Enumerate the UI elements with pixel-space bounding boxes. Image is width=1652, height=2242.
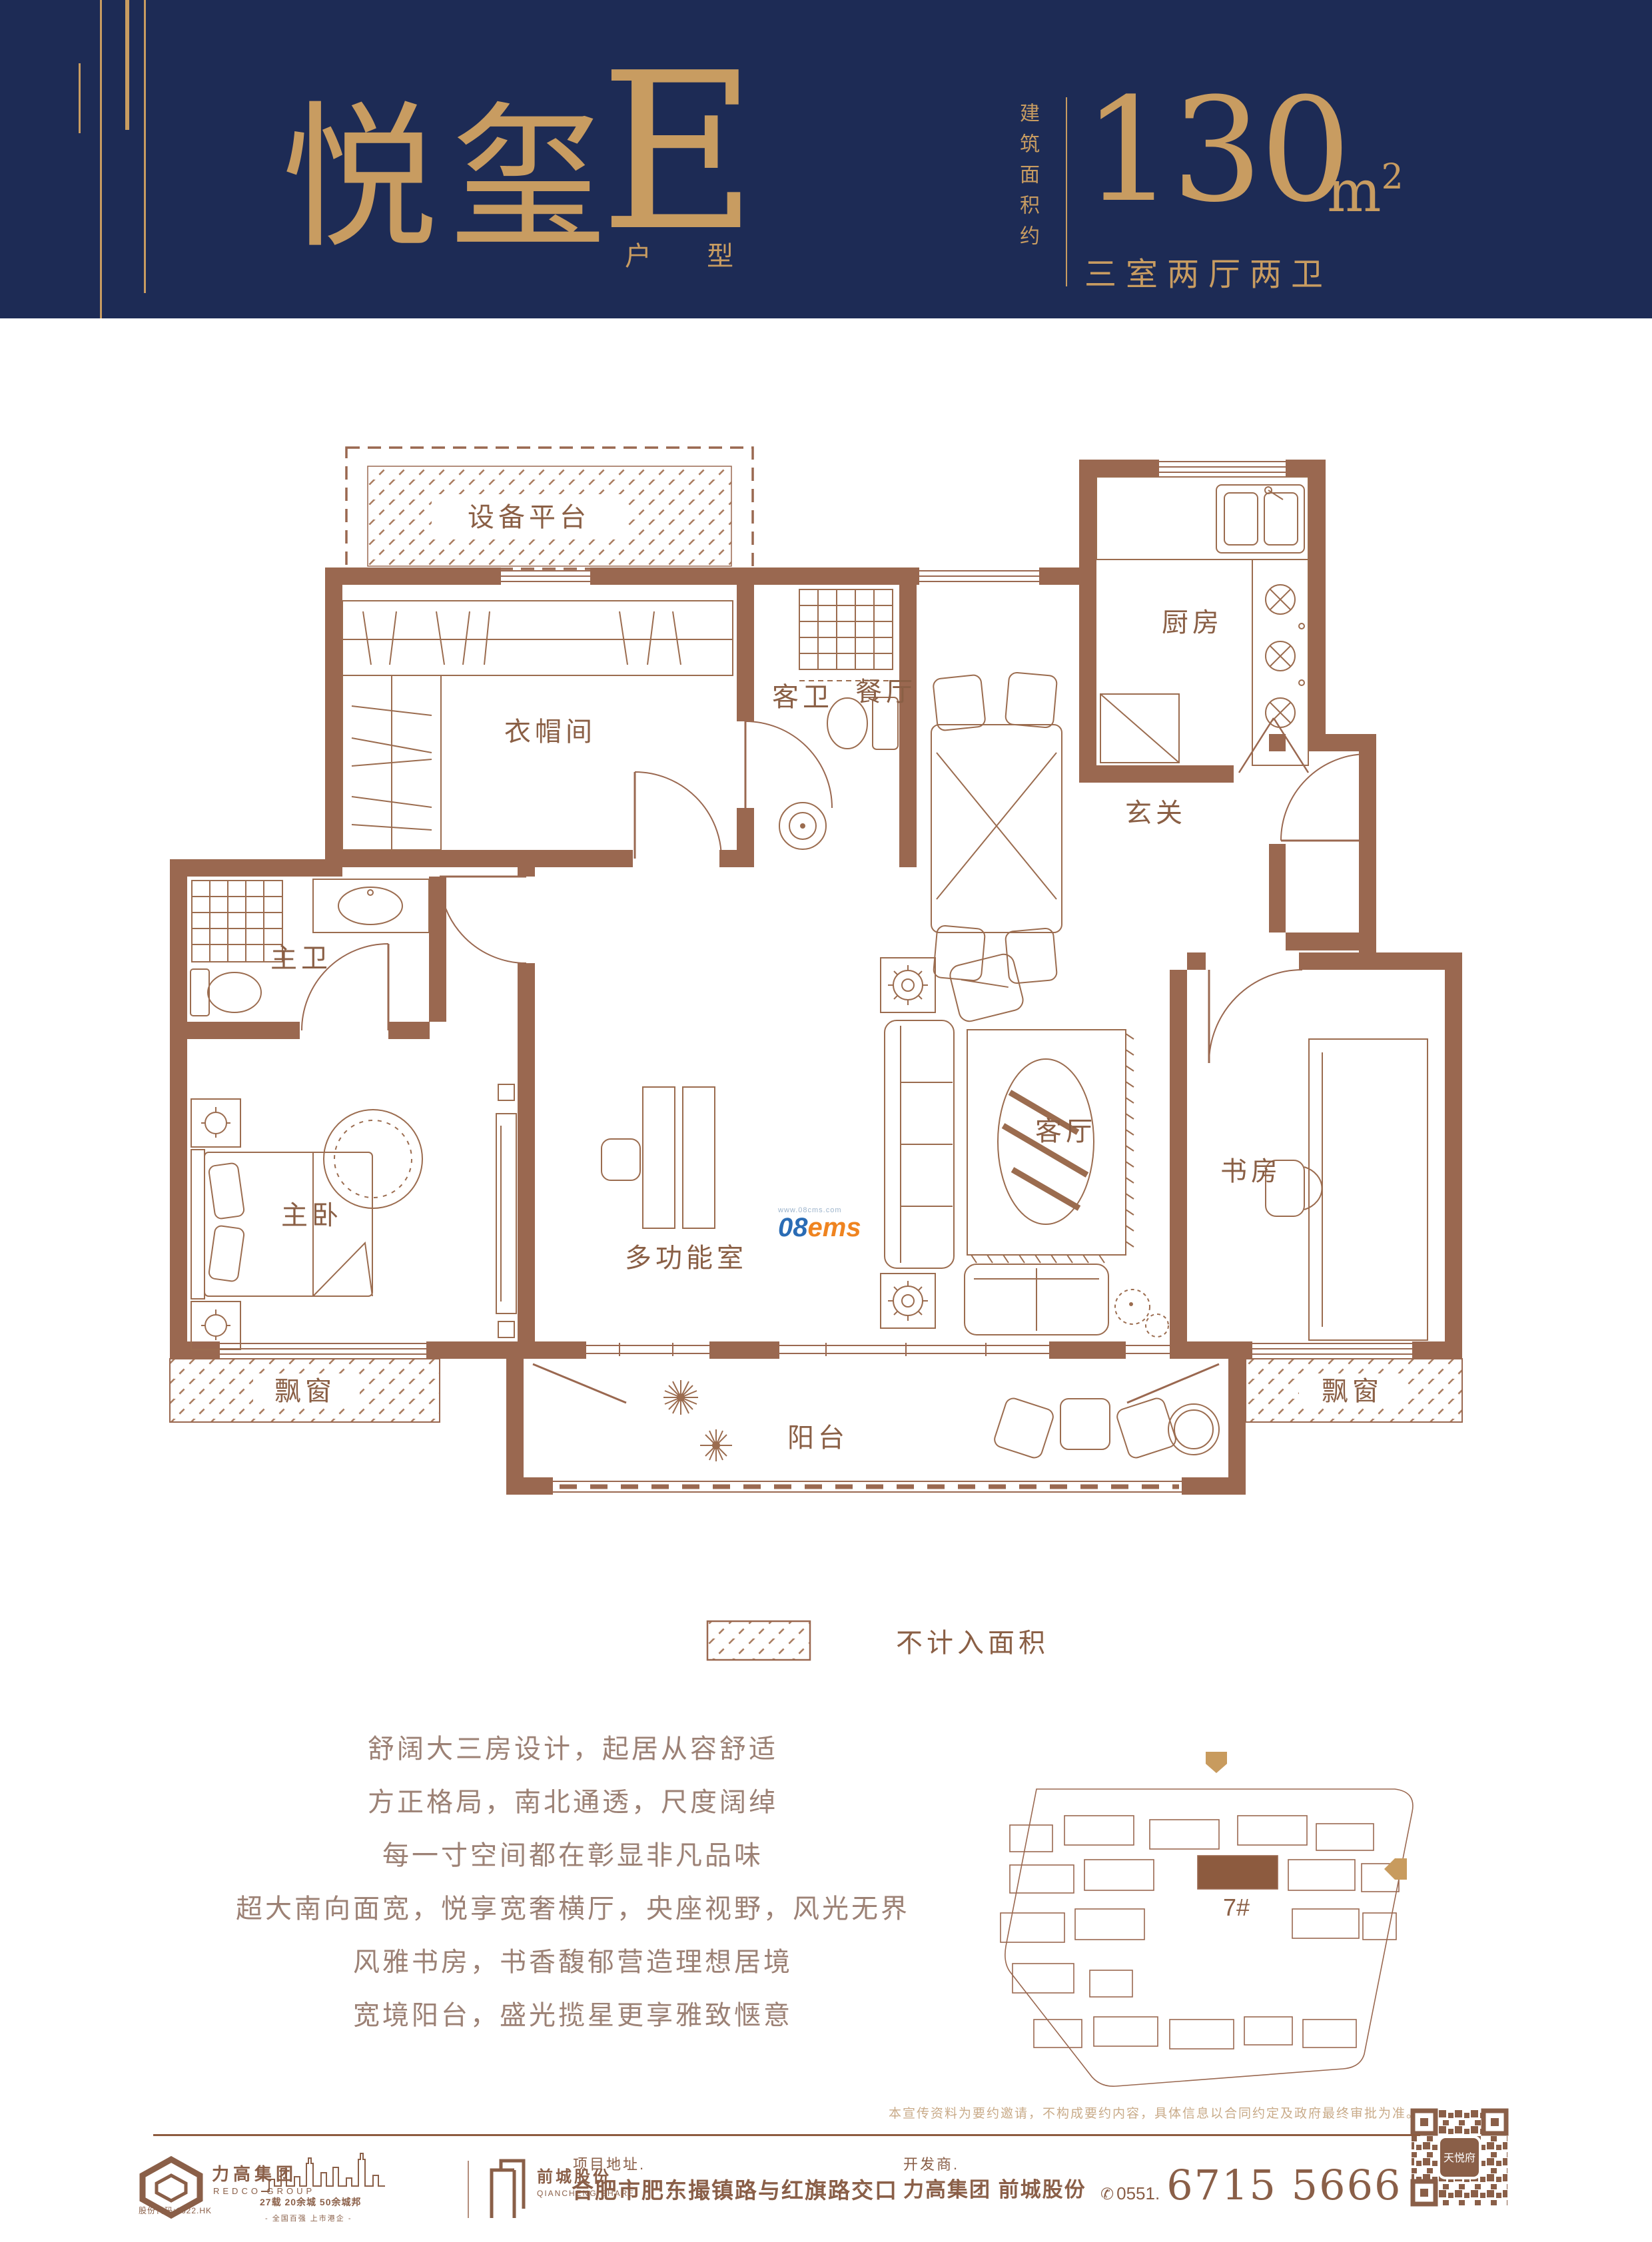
- room-label-kitchen: 厨房: [1162, 608, 1223, 637]
- site-arrow-east: [1384, 1858, 1407, 1880]
- developer-names: 力高集团 前城股份: [903, 2173, 1086, 2203]
- developer-label: 开发商.: [903, 2153, 959, 2174]
- address-label: 项目地址.: [573, 2153, 645, 2174]
- footer-rule: [153, 2134, 1420, 2136]
- marketing-line: 宽境阳台，盛光揽星更享雅致惬意: [206, 1989, 939, 2042]
- room-label-multi: 多功能室: [625, 1244, 747, 1273]
- site-arrow-north: [1206, 1752, 1227, 1773]
- legend: 不计入面积: [707, 1621, 1049, 1660]
- marketing-line: 每一寸空间都在彰显非凡品味: [206, 1829, 939, 1882]
- marketing-copy: 舒阔大三房设计，起居从容舒适 方正格局，南北通透，尺度阔绰 每一寸空间都在彰显非…: [206, 1722, 939, 2042]
- bay-windows: [170, 1359, 1462, 1422]
- room-label-cloakroom: 衣帽间: [504, 717, 596, 747]
- redco-name-en: REDCO GROUP: [213, 2186, 315, 2196]
- room-label-balcony: 阳台: [787, 1423, 849, 1453]
- phone-icon: ✆: [1100, 2185, 1114, 2204]
- stock-code: 股份代码:1622.HK: [139, 2205, 212, 2216]
- phone-row: ✆ 0551. 6715 5666: [1100, 2161, 1402, 2209]
- furniture: [191, 477, 1428, 1461]
- qr-center-label: 天悦府: [1444, 2152, 1475, 2164]
- milestones-text: 27载 20余城 50余城邦: [260, 2195, 362, 2209]
- room-label-dining: 餐厅: [855, 677, 917, 707]
- windows: [172, 462, 1412, 1492]
- qr-code: 天悦府: [1409, 2107, 1510, 2208]
- room-label-master-bed: 主卧: [281, 1201, 342, 1230]
- disclaimer-text: 本宣传资料为要约邀请，不构成要约内容，具体信息以合同约定及政府最终审批为准。: [799, 2103, 1420, 2121]
- milestones-subtext: - 全国百强 上市港企 -: [265, 2213, 352, 2223]
- room-label-bay-left: 飘窗: [274, 1377, 336, 1406]
- room-label-bay-right: 飘窗: [1322, 1377, 1383, 1406]
- room-label-living: 客厅: [1035, 1117, 1096, 1146]
- watermark: www.08cms.com08ems: [778, 1207, 861, 1241]
- legend-label: 不计入面积: [896, 1629, 1049, 1658]
- marketing-line: 风雅书房，书香馥郁营造理想居境: [206, 1936, 939, 1989]
- marketing-line: 超大南向面宽，悦享宽奢横厅，央座视野，风光无界: [206, 1882, 939, 1936]
- room-label-master-bath: 主卫: [270, 944, 332, 973]
- room-label-guest-bath: 客卫: [772, 683, 833, 712]
- room-label-platform: 设备平台: [468, 503, 590, 532]
- qiancheng-logo-icon: [492, 2161, 524, 2218]
- phone-number: 6715 5666: [1166, 2161, 1402, 2209]
- redco-name: 力高集团: [212, 2161, 297, 2185]
- site-building-label: 7#: [1223, 1894, 1250, 1921]
- site-building-7: [1198, 1856, 1278, 1889]
- room-label-study: 书房: [1220, 1157, 1282, 1186]
- site-plan: 7#: [1001, 1752, 1413, 2086]
- poster-page: 悦玺 E 户 型 建筑面积约 130 m2 三室两厅两卫: [0, 0, 1652, 2242]
- room-label-foyer: 玄关: [1125, 799, 1186, 828]
- marketing-line: 舒阔大三房设计，起居从容舒适: [206, 1722, 939, 1776]
- marketing-line: 方正格局，南北通透，尺度阔绰: [206, 1776, 939, 1829]
- phone-area-code: 0551.: [1116, 2183, 1160, 2204]
- project-address: 合肥市肥东撮镇路与红旗路交口: [572, 2173, 898, 2205]
